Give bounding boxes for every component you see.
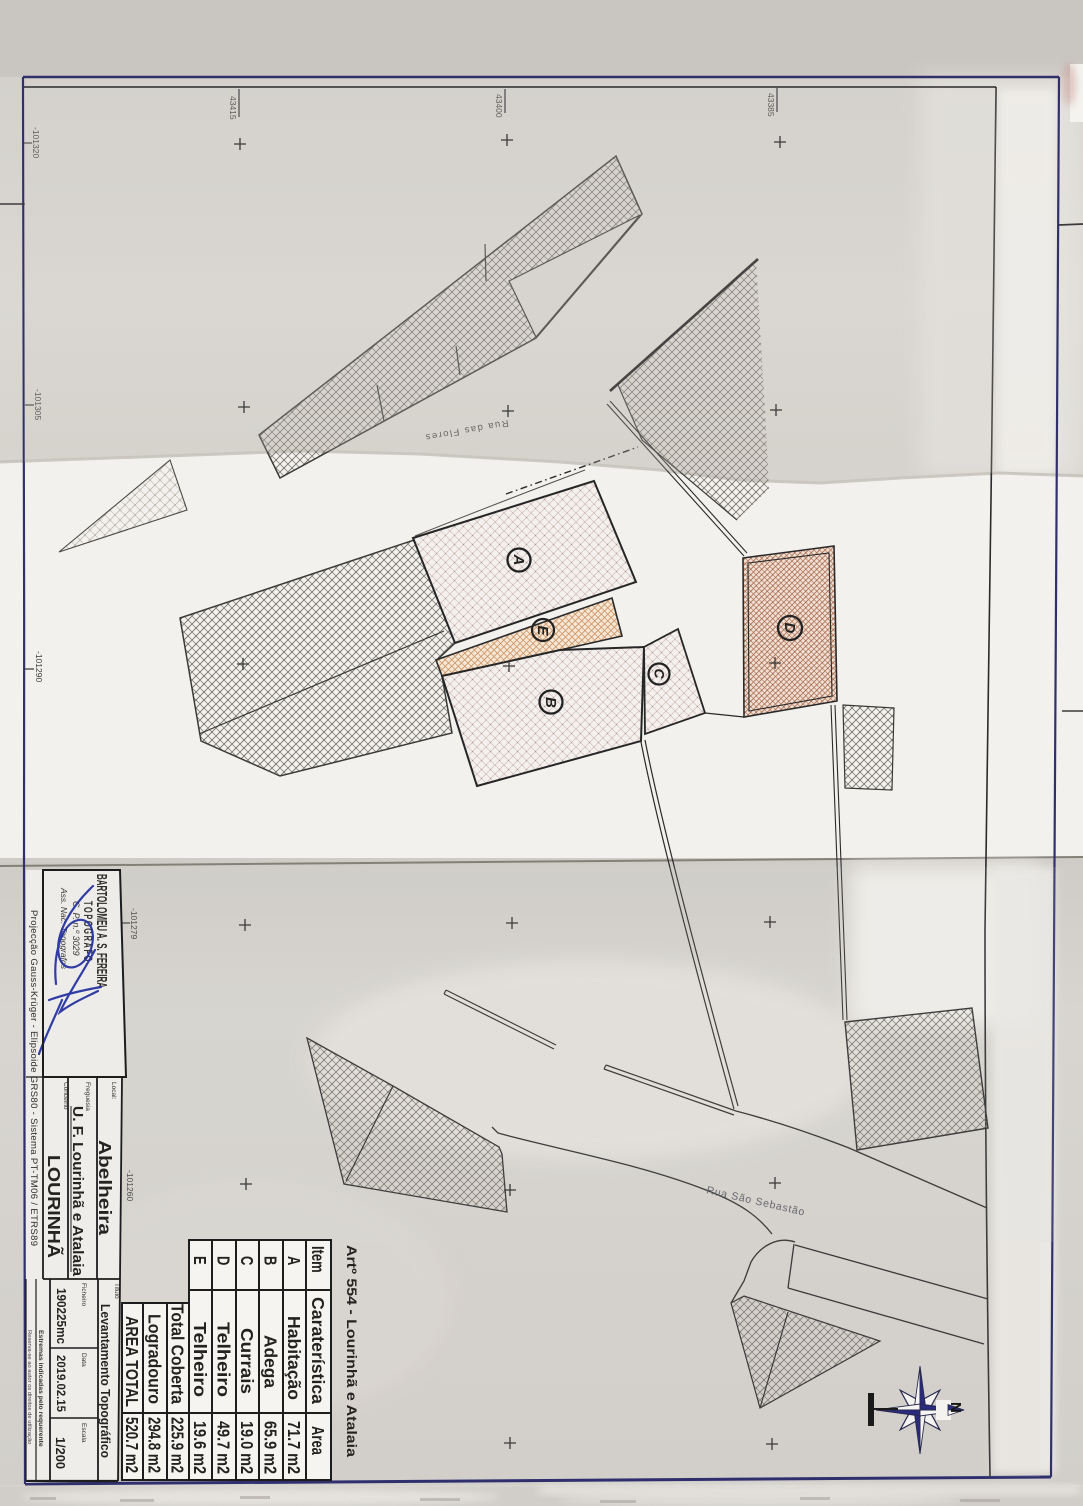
svg-text:Area: Area — [307, 1426, 326, 1455]
svg-text:Total Coberta: Total Coberta — [167, 1304, 186, 1404]
svg-text:Data: Data — [80, 1353, 87, 1367]
svg-text:1/200: 1/200 — [53, 1437, 68, 1469]
svg-text:Local:: Local: — [110, 1082, 117, 1100]
svg-text:Reserva-se ao autor os direito: Reserva-se ao autor os direitos de utili… — [26, 1330, 32, 1444]
svg-text:D: D — [781, 623, 798, 634]
svg-text:Telheiro: Telheiro — [213, 1322, 232, 1397]
svg-text:Artº 554 - Lourinhã e Atalaia: Artº 554 - Lourinhã e Atalaia — [344, 1245, 360, 1458]
svg-text:D: D — [213, 1256, 232, 1265]
svg-text:E: E — [534, 626, 551, 637]
svg-text:B: B — [260, 1256, 279, 1265]
svg-text:Levantamento Topográfico: Levantamento Topográfico — [98, 1304, 113, 1458]
svg-text:Habitação: Habitação — [283, 1316, 302, 1400]
svg-text:AREA TOTAL: AREA TOTAL — [121, 1316, 140, 1407]
svg-text:49.7 m2: 49.7 m2 — [213, 1421, 232, 1474]
svg-text:520.7 m2: 520.7 m2 — [121, 1417, 140, 1473]
svg-text:U. F. Lourinhã e Atalaia: U. F. Lourinhã e Atalaia — [70, 1106, 86, 1277]
svg-text:N: N — [947, 1402, 964, 1413]
svg-text:Abelheira: Abelheira — [95, 1140, 114, 1236]
svg-text:19.6 m2: 19.6 m2 — [189, 1421, 208, 1474]
svg-text:-101290: -101290 — [34, 651, 44, 682]
svg-text:Projecção Gauss-Krüger - Elips: Projecção Gauss-Krüger - Elipsoide GRS80… — [28, 910, 39, 1246]
svg-text:65.9 m2: 65.9 m2 — [260, 1421, 279, 1474]
svg-text:2019.02.15: 2019.02.15 — [54, 1355, 67, 1412]
svg-text:225.9 m2: 225.9 m2 — [167, 1417, 186, 1473]
svg-text:294.8 m2: 294.8 m2 — [144, 1417, 163, 1473]
svg-text:Caraterística: Caraterística — [307, 1297, 326, 1404]
svg-text:Adega: Adega — [260, 1335, 279, 1388]
svg-text:Estremas indicadas pelo requer: Estremas indicadas pelo requerente — [37, 1330, 44, 1447]
svg-text:LOURINHÃ: LOURINHÃ — [44, 1155, 65, 1258]
svg-text:Item: Item — [307, 1246, 326, 1273]
svg-text:A: A — [283, 1256, 302, 1265]
svg-text:Escala: Escala — [80, 1423, 87, 1443]
svg-text:Logradouro: Logradouro — [144, 1314, 163, 1404]
svg-text:Concelho: Concelho — [62, 1082, 69, 1110]
svg-text:19.0 m2: 19.0 m2 — [236, 1421, 255, 1474]
svg-text:Ficheiro: Ficheiro — [80, 1283, 87, 1307]
svg-text:C: C — [652, 669, 668, 680]
svg-text:B: B — [542, 697, 559, 708]
svg-text:Titulo: Titulo — [113, 1283, 120, 1299]
svg-text:Telheiro: Telheiro — [189, 1322, 208, 1397]
svg-text:A: A — [510, 554, 527, 566]
svg-text:190225mc: 190225mc — [54, 1288, 69, 1344]
svg-text:Currais: Currais — [236, 1328, 255, 1394]
svg-text:C: C — [236, 1256, 255, 1265]
svg-text:E: E — [189, 1256, 208, 1265]
svg-text:BARTOLOMEU A. S. FEREIRA: BARTOLOMEU A. S. FEREIRA — [94, 874, 110, 988]
svg-text:71.7 m2: 71.7 m2 — [283, 1421, 302, 1474]
